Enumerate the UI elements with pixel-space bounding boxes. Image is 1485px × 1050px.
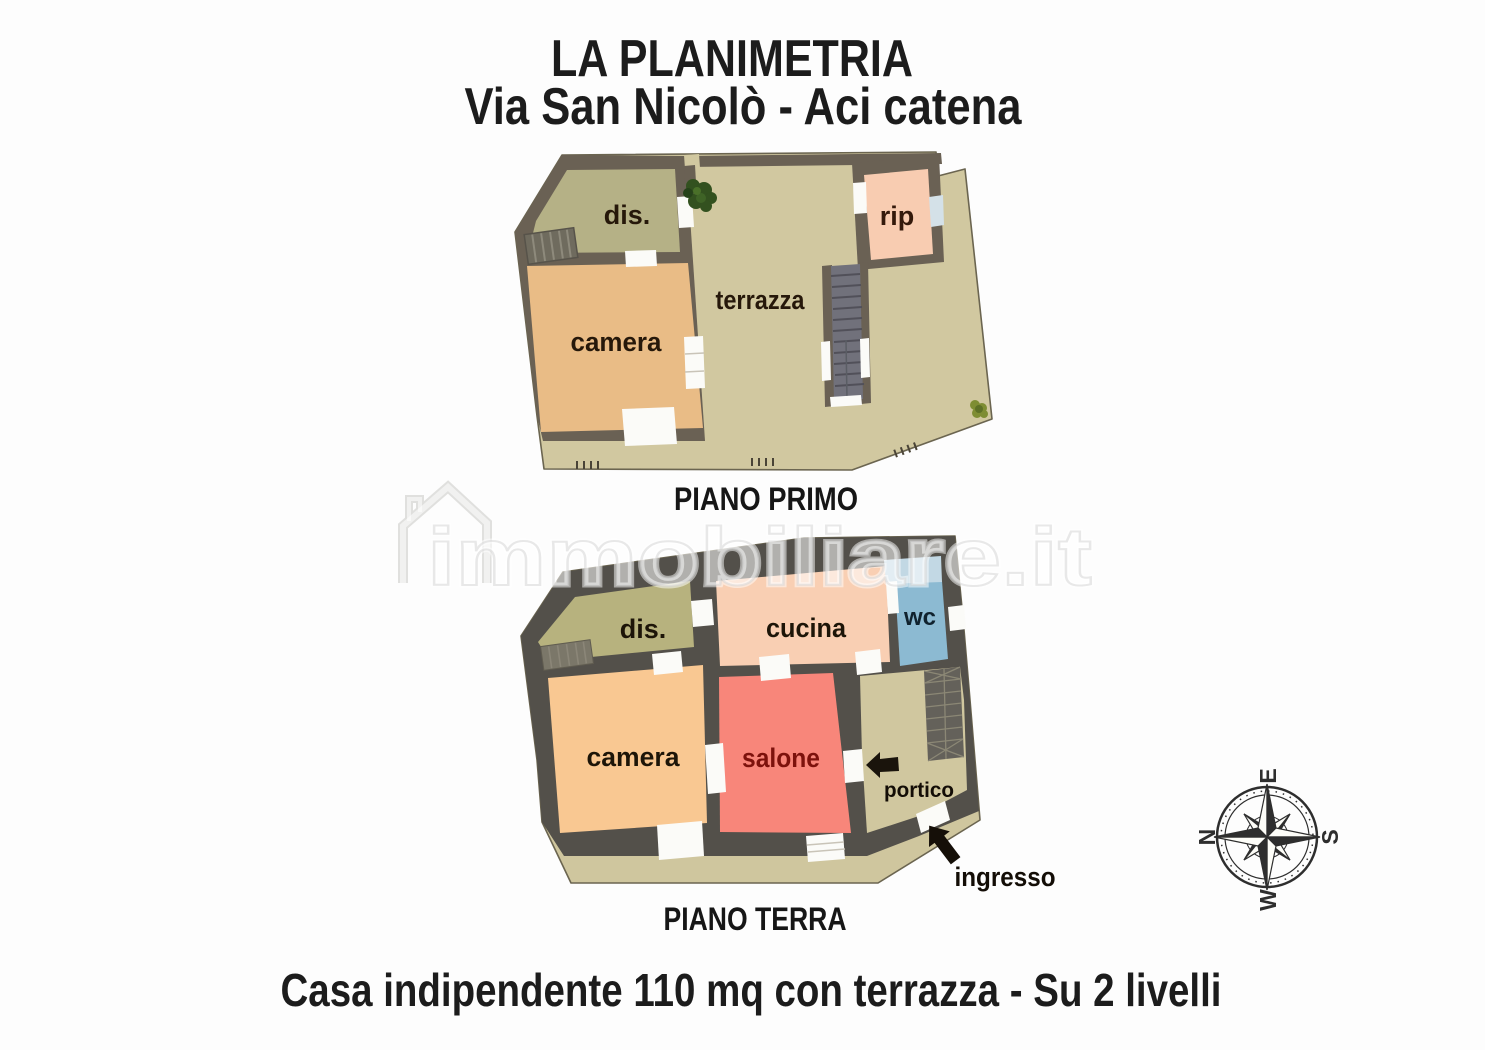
svg-text:rip: rip	[880, 201, 915, 231]
svg-text:W: W	[1255, 889, 1281, 911]
svg-text:camera: camera	[571, 327, 663, 357]
svg-text:E: E	[1255, 768, 1281, 783]
svg-text:Via San Nicolò - Aci catena: Via San Nicolò - Aci catena	[465, 78, 1023, 136]
svg-text:ingresso: ingresso	[955, 862, 1056, 892]
svg-text:wc: wc	[903, 604, 936, 631]
svg-text:dis.: dis.	[604, 200, 651, 230]
svg-text:PIANO TERRA: PIANO TERRA	[664, 901, 847, 937]
svg-text:N: N	[1194, 829, 1220, 846]
svg-text:terrazza: terrazza	[716, 285, 806, 315]
svg-text:S: S	[1317, 829, 1343, 844]
svg-text:camera: camera	[587, 742, 681, 772]
svg-text:Casa indipendente 110 mq con t: Casa indipendente 110 mq con terrazza - …	[281, 964, 1222, 1016]
svg-text:portico: portico	[884, 779, 954, 802]
svg-text:salone: salone	[742, 743, 820, 773]
svg-text:cucina: cucina	[766, 613, 847, 643]
svg-text:immobiliare.it: immobiliare.it	[427, 512, 1092, 603]
svg-text:dis.: dis.	[620, 614, 667, 644]
